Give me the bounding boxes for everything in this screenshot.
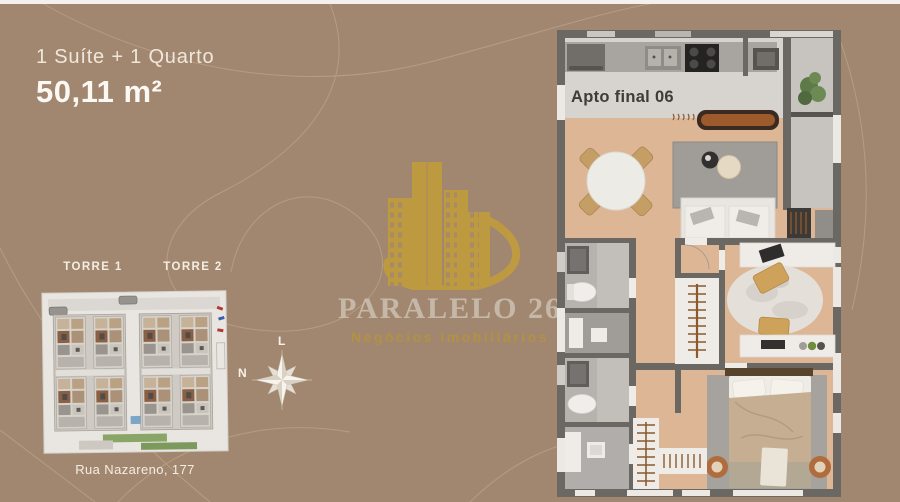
technical-shaft [565, 313, 629, 353]
street-address-text: Rua Nazareno, 177 [40, 462, 230, 477]
unit-area-text: 50,11 m² [36, 74, 214, 110]
dining-set [578, 145, 655, 217]
office-room [727, 243, 835, 357]
pouf-left [706, 456, 728, 478]
brand-tagline-text: Negócios Imobiliários [300, 329, 600, 345]
site-plan-map [40, 284, 230, 460]
balcony-area [783, 30, 833, 210]
sofa [681, 198, 775, 244]
unit-headline: 1 Suíte + 1 Quarto 50,11 m² [36, 46, 214, 110]
unit-type-text: 1 Suíte + 1 Quarto [36, 46, 214, 69]
site-plan-tower2 [139, 313, 213, 430]
compass-rose: L N [236, 334, 320, 426]
apartment-floor-plan: Apto final 06 [557, 30, 841, 497]
tower2-label: TORRE 2 [158, 261, 228, 273]
brand-name-text: PARALELO 26 [300, 292, 600, 326]
top-border-strip [0, 0, 900, 4]
bathroom-2 [565, 358, 629, 422]
bathroom-1 [565, 243, 629, 308]
pouf-right [809, 456, 831, 478]
closet-ladder-shelf [675, 278, 719, 364]
tower1-label: TORRE 1 [58, 261, 128, 273]
brand-logo: PARALELO 26 Negócios Imobiliários [300, 160, 600, 345]
kitchen-area [565, 38, 779, 76]
master-bedroom [706, 368, 831, 489]
unit-number-label: Apto final 06 [571, 88, 674, 107]
site-plan-tower1 [53, 314, 127, 431]
service-room [565, 427, 629, 489]
compass-rose-icon [250, 348, 314, 412]
logo-buildings-icon [380, 160, 520, 290]
compass-north-label: N [238, 366, 247, 380]
flyer-canvas: 1 Suíte + 1 Quarto 50,11 m² PARALE [0, 0, 900, 502]
compass-east-label: L [278, 334, 285, 348]
